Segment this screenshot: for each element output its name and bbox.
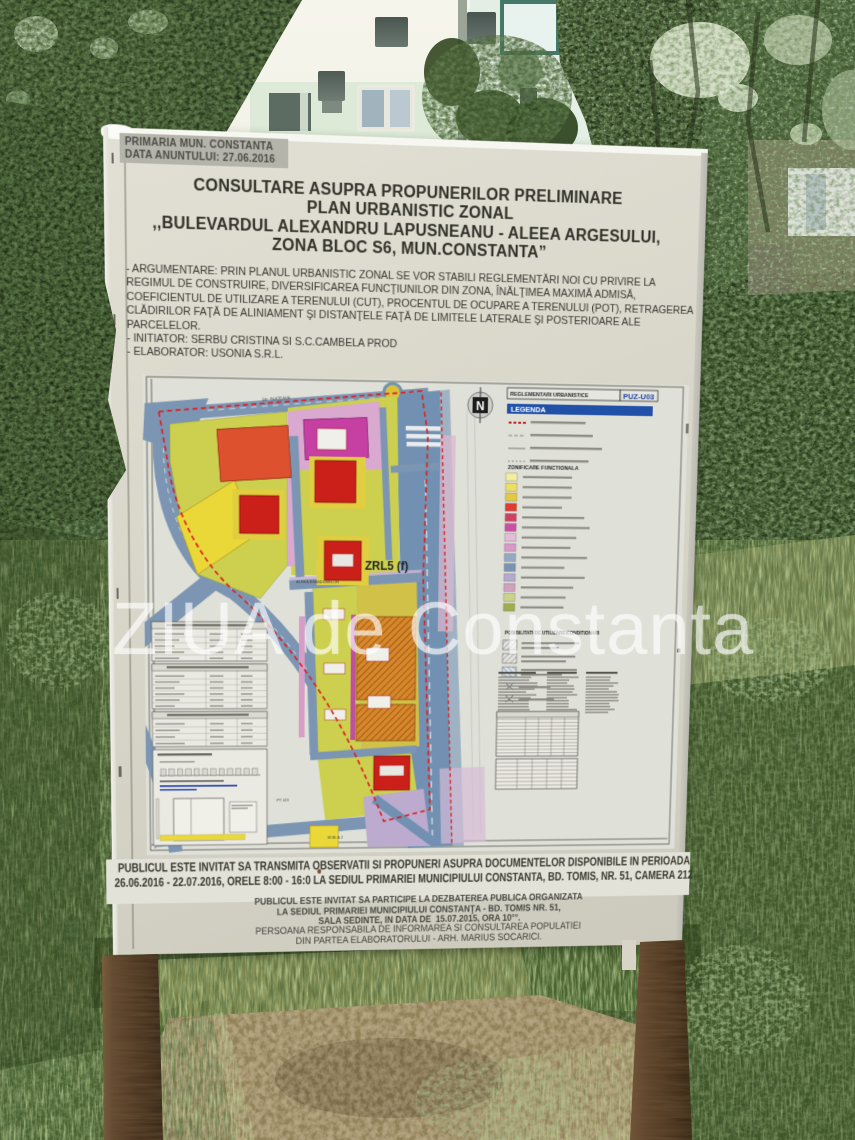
svg-text:PT 123: PT 123 bbox=[277, 798, 290, 803]
svg-text:LEGENDA: LEGENDA bbox=[511, 405, 546, 414]
svg-text:ALEEA BRANDUSELOR: ALEEA BRANDUSELOR bbox=[296, 579, 339, 584]
svg-text:18 Bl. A 2: 18 Bl. A 2 bbox=[327, 835, 344, 840]
svg-text:PUZ-U03: PUZ-U03 bbox=[623, 391, 655, 401]
svg-text:ZRL5 (f): ZRL5 (f) bbox=[365, 560, 409, 573]
svg-text:N: N bbox=[476, 399, 485, 412]
svg-text:ZONIFICARE FUNCTIONALA: ZONIFICARE FUNCTIONALA bbox=[508, 465, 579, 472]
